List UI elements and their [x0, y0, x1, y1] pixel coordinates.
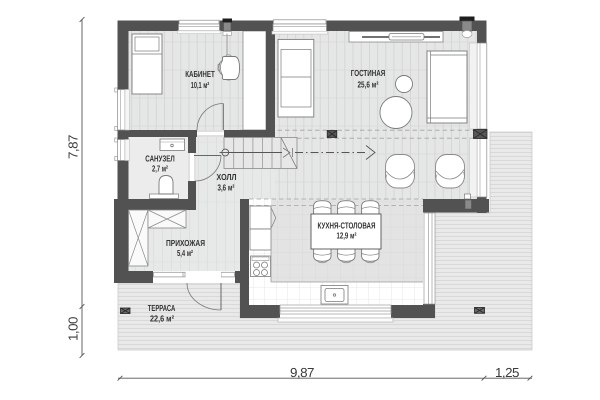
svg-text:ХОЛЛ: ХОЛЛ	[217, 172, 237, 182]
svg-text:5,4 м²: 5,4 м²	[177, 248, 193, 258]
svg-text:1,25: 1,25	[495, 365, 519, 380]
svg-text:ТЕРРАСА: ТЕРРАСА	[148, 303, 176, 313]
svg-text:3,6 м²: 3,6 м²	[218, 183, 235, 193]
svg-text:25,6 м²: 25,6 м²	[358, 80, 379, 90]
svg-text:1,00: 1,00	[66, 317, 81, 341]
svg-text:12,9 м²: 12,9 м²	[337, 231, 357, 241]
svg-text:9,87: 9,87	[290, 365, 314, 380]
svg-text:10,1 м²: 10,1 м²	[191, 80, 210, 90]
svg-text:КАБИНЕТ: КАБИНЕТ	[185, 69, 215, 79]
svg-text:22,6 м²: 22,6 м²	[150, 314, 174, 324]
svg-text:ГОСТИНАЯ: ГОСТИНАЯ	[351, 68, 386, 78]
svg-text:КУХНЯ-СТОЛОВАЯ: КУХНЯ-СТОЛОВАЯ	[318, 221, 376, 231]
svg-text:7,87: 7,87	[66, 135, 81, 159]
svg-text:2,7 м²: 2,7 м²	[152, 164, 168, 174]
svg-text:ПРИХОЖАЯ: ПРИХОЖАЯ	[166, 238, 205, 248]
svg-text:САНУЗЕЛ: САНУЗЕЛ	[145, 154, 175, 164]
